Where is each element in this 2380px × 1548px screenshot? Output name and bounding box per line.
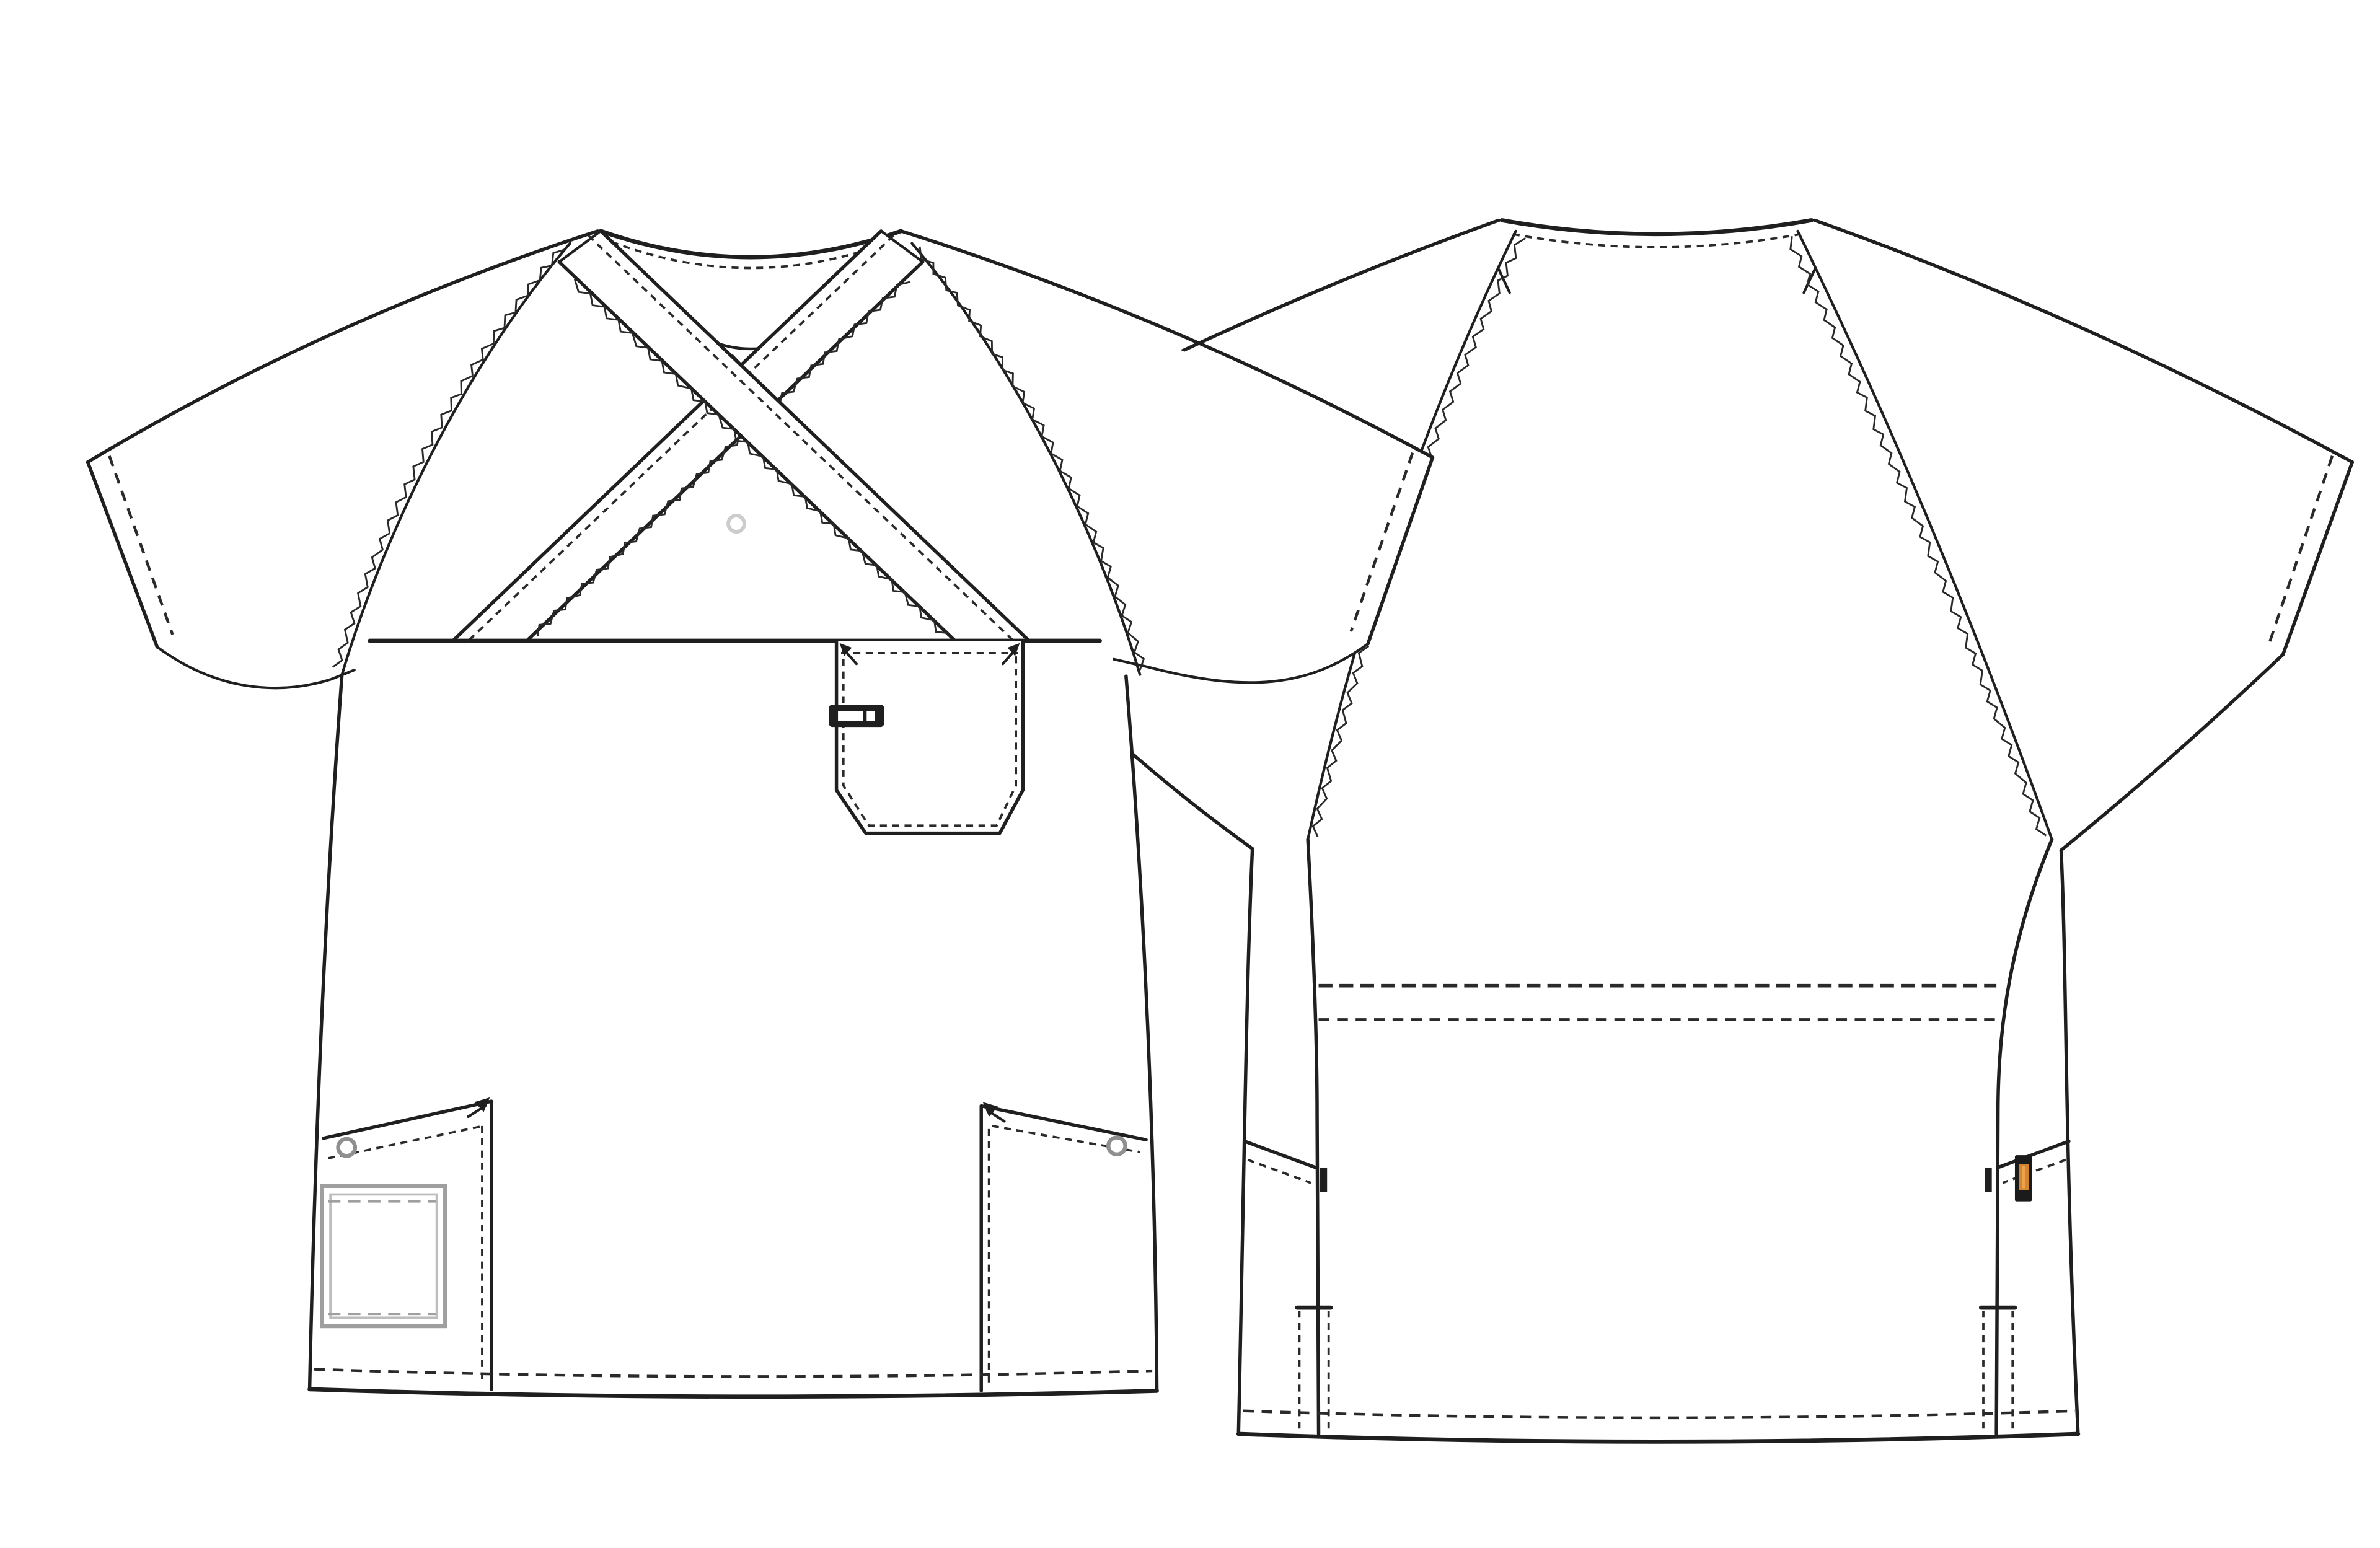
rivet-left bbox=[338, 1139, 355, 1156]
pen-slot bbox=[829, 705, 884, 727]
snap-button bbox=[728, 516, 744, 532]
woven-label bbox=[2015, 1155, 2032, 1202]
rivet-right bbox=[1108, 1138, 1125, 1154]
chest-pocket bbox=[829, 641, 1023, 833]
back-right-pocket-bartack bbox=[1985, 1168, 1991, 1192]
scrub-top-flat-sketch bbox=[0, 0, 2380, 1548]
technical-flat-canvas bbox=[0, 0, 2380, 1548]
back-left-pocket-bartack bbox=[1320, 1168, 1327, 1192]
